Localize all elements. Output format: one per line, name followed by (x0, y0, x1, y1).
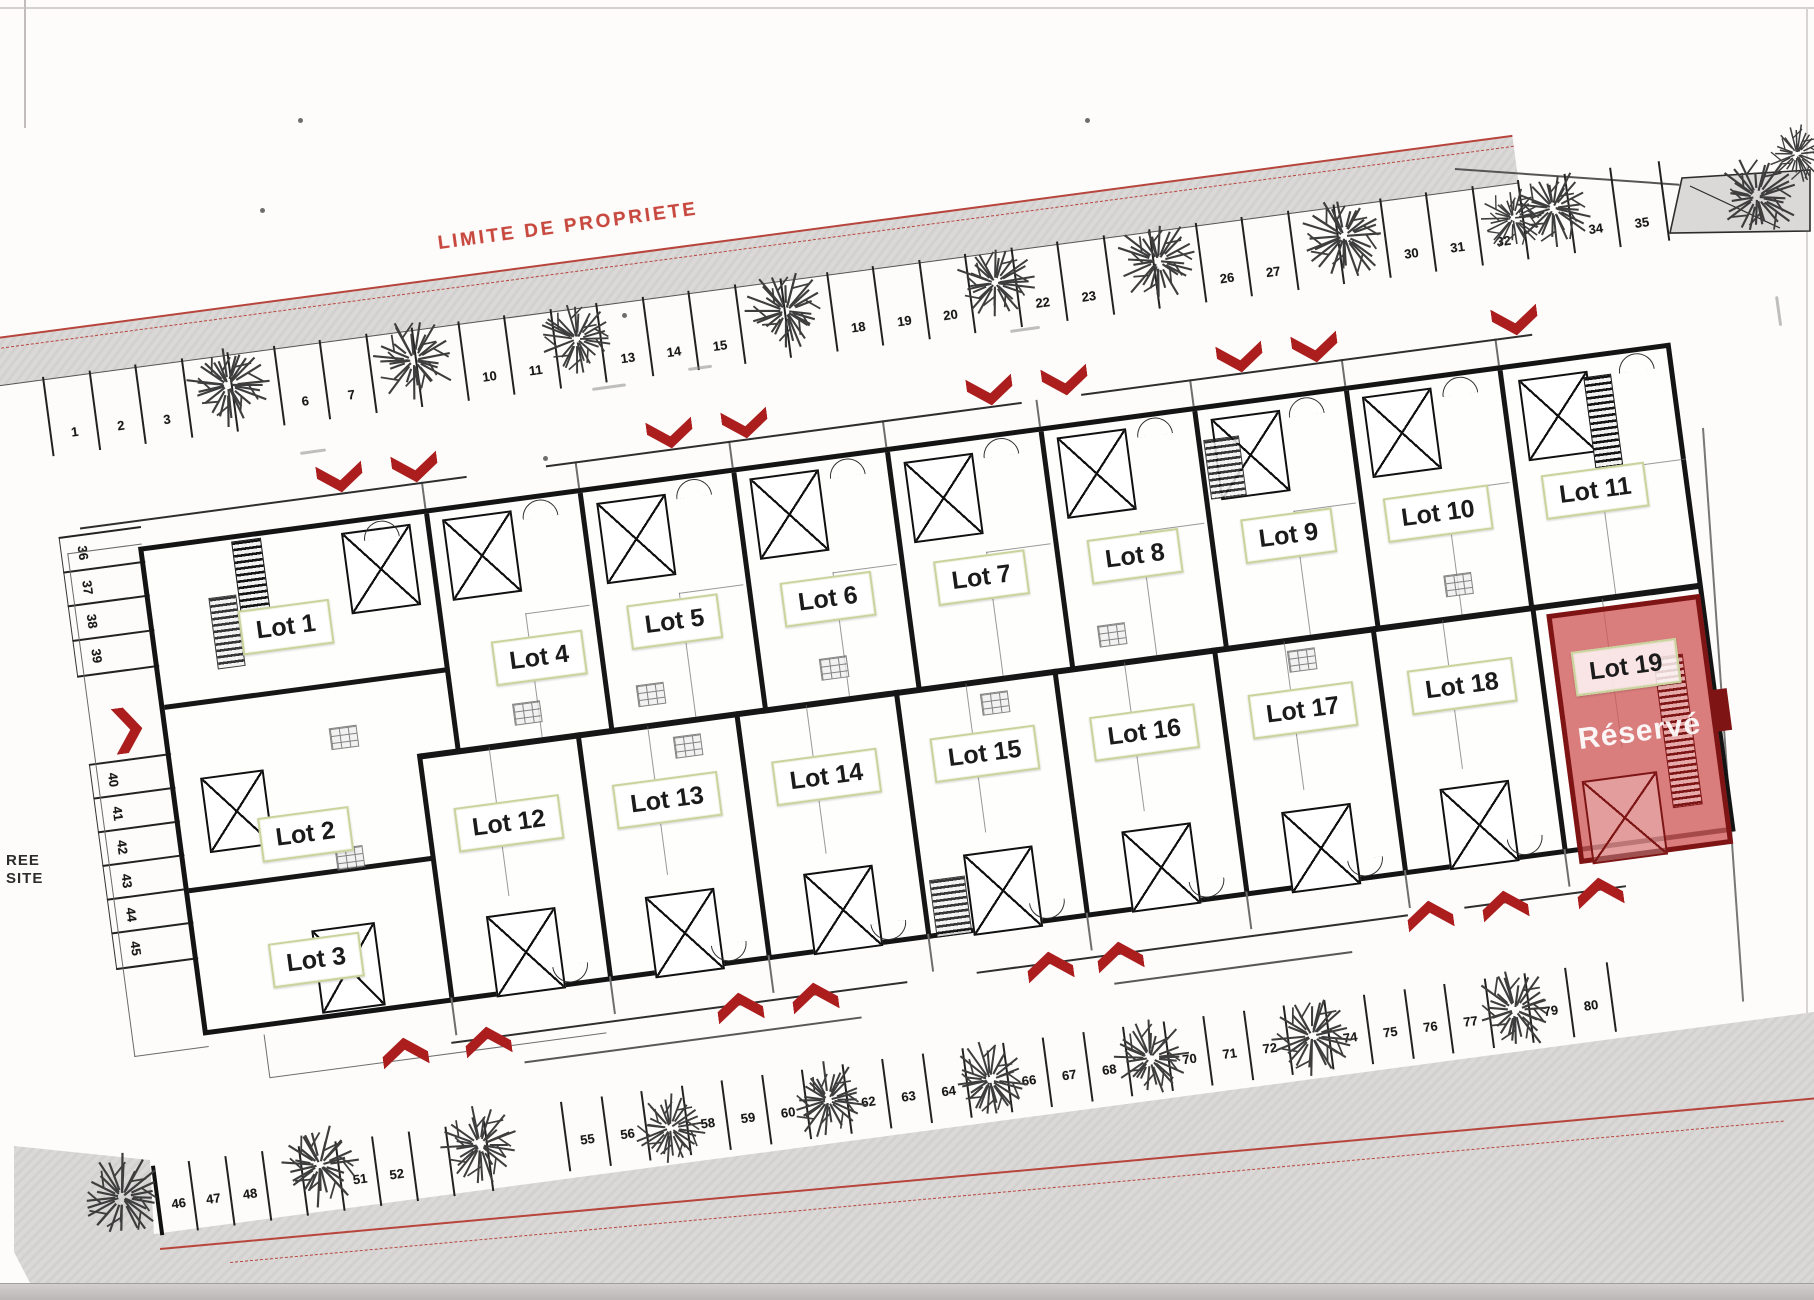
road-edge-top (80, 476, 467, 530)
parking-number-55: 55 (579, 1132, 595, 1147)
fence-stub-bottom-3 (768, 955, 775, 993)
direction-arrow-up-1 (380, 1035, 429, 1070)
scan-speck-1 (622, 313, 627, 318)
building-left-wall-2 (189, 856, 434, 893)
parking-number-59: 59 (740, 1110, 756, 1125)
door-arc-top-2 (520, 497, 558, 520)
garage-x-bottom-1 (486, 907, 566, 998)
garage-x-reserved (1582, 771, 1668, 864)
parking-number-35: 35 (1634, 215, 1650, 230)
parking-number-10: 10 (482, 369, 498, 384)
lot-label-6[interactable]: Lot 6 (780, 571, 877, 628)
lot-label-14[interactable]: Lot 14 (771, 748, 882, 807)
tree-icon-12 (76, 1151, 168, 1243)
reserved-zone-notch (1711, 688, 1732, 732)
parking-number-7: 7 (347, 388, 356, 402)
parking-number-27: 27 (1265, 264, 1281, 279)
garden-boundary-left (67, 543, 209, 1056)
tree-icon-17 (948, 1038, 1032, 1122)
parking-number-76: 76 (1422, 1019, 1438, 1034)
parking-number-63: 63 (901, 1089, 917, 1104)
fixture-9 (1443, 572, 1474, 598)
page-top-border (0, 7, 1814, 9)
tiny-text-smudge-3 (300, 448, 326, 455)
garage-x-top-2 (442, 510, 522, 601)
fence-stub-top-7 (1341, 359, 1346, 386)
tree-icon-6 (1114, 217, 1202, 305)
tree-icon-2 (370, 316, 458, 404)
fixture-cluster-2 (929, 876, 972, 938)
fence-stub-top-5 (1035, 400, 1040, 427)
parking-number-15: 15 (712, 338, 728, 353)
garage-x-top-8 (1362, 388, 1442, 479)
door-arc-top-4 (828, 456, 866, 479)
lot-label-9[interactable]: Lot 9 (1240, 507, 1337, 564)
garage-x-bottom-4 (963, 845, 1043, 936)
fence-stub-top-4 (882, 420, 887, 447)
property-limit-label-top: LIMITE DE PROPRIETE (437, 199, 699, 253)
unit-wall-bottom-2 (575, 732, 613, 981)
scan-speck-3 (298, 118, 303, 123)
fence-stub-top-3 (728, 441, 733, 468)
site-plan: LIMITE DE PROPRIETE LIMITE DE PROPRIETE … (0, 0, 1814, 1300)
tree-icon-9 (1479, 184, 1547, 252)
parking-number-23: 23 (1081, 289, 1097, 304)
tree-icon-7 (1299, 191, 1389, 281)
partition-h (679, 584, 744, 594)
tree-icon-20 (1471, 966, 1559, 1054)
tree-icon-4 (742, 267, 830, 355)
garage-x-bottom-6 (1281, 803, 1361, 894)
parking-number-67: 67 (1061, 1068, 1077, 1083)
fixture-6 (1097, 622, 1128, 648)
lot-label-8[interactable]: Lot 8 (1087, 528, 1184, 585)
site-entrance-label: REE SITE (6, 852, 43, 888)
parking-number-47: 47 (205, 1191, 221, 1206)
parking-stall-35: 35 (1609, 161, 1670, 247)
garage-x-bottom-5 (1121, 822, 1201, 913)
fence-stub-bottom-7 (1404, 870, 1411, 908)
fence-stub-bottom-6 (1245, 891, 1252, 929)
partition-h (525, 605, 590, 615)
parking-number-22: 22 (1035, 295, 1051, 310)
tiny-text-smudge-4 (1775, 296, 1782, 326)
door-arc-top-5 (981, 436, 1019, 459)
unit-wall-bottom-5 (1052, 669, 1090, 918)
lot-label-5[interactable]: Lot 5 (626, 593, 723, 650)
fixture-7 (1287, 647, 1318, 673)
tiny-text-smudge-1 (592, 383, 626, 391)
road-edge-bottom-2 (524, 1016, 861, 1063)
fence-stub-bottom-2 (609, 976, 616, 1014)
scan-speck-2 (543, 456, 548, 461)
parking-number-31: 31 (1449, 240, 1465, 255)
lot-label-16[interactable]: Lot 16 (1089, 703, 1200, 762)
reserved-lot-overlay: Lot 19Réservé (1546, 594, 1733, 864)
parking-number-48: 48 (242, 1186, 258, 1201)
fixture-cluster-1 (1203, 435, 1247, 499)
garage-x-top-5 (903, 453, 983, 544)
unit-wall-bottom-4 (894, 690, 932, 939)
parking-number-80: 80 (1583, 998, 1599, 1013)
direction-arrow-down-9 (1490, 304, 1539, 339)
lot-label-7[interactable]: Lot 7 (933, 549, 1030, 606)
tree-icon-11 (1765, 122, 1814, 186)
fence-stub-top-6 (1189, 379, 1194, 406)
building-outline: Lot 19RéservéLot 1Lot 2Lot 3Lot 4Lot 5Lo… (138, 343, 1736, 1036)
lot-label-4[interactable]: Lot 4 (491, 630, 588, 687)
parking-number-1: 1 (70, 425, 79, 439)
parking-number-2: 2 (116, 419, 125, 433)
fence-stub-top-1 (421, 482, 426, 509)
page-left-border (24, 0, 26, 128)
fixture-2 (512, 700, 543, 726)
tree-icon-5 (953, 241, 1037, 325)
parking-number-19: 19 (896, 314, 912, 329)
parking-number-6: 6 (301, 394, 310, 408)
fence-stub-bottom-1 (450, 997, 457, 1035)
parking-number-14: 14 (666, 344, 682, 359)
parking-stall-80: 80 (1564, 962, 1617, 1037)
door-arc-top-8 (1440, 375, 1478, 398)
fixture-8 (673, 733, 704, 759)
fence-stub-top-2 (575, 461, 580, 488)
fixture-5 (980, 690, 1011, 716)
lot-label-12[interactable]: Lot 12 (453, 794, 564, 853)
fence-stub-bottom-4 (927, 934, 934, 972)
door-arc-top-6 (1135, 415, 1173, 438)
fixture-4 (819, 655, 850, 681)
parking-number-30: 30 (1403, 246, 1419, 261)
lot-label-18[interactable]: Lot 18 (1407, 657, 1518, 716)
garage-x-top-3 (596, 494, 676, 585)
tree-icon-14 (438, 1103, 522, 1187)
page-bottom-strip (0, 1283, 1814, 1300)
tree-icon-13 (275, 1120, 365, 1210)
fence-stub-top-8 (1494, 339, 1499, 366)
parking-number-3: 3 (163, 412, 172, 426)
scan-speck-5 (260, 208, 265, 213)
garage-x-bottom-3 (803, 865, 883, 956)
scan-speck-4 (1085, 118, 1090, 123)
parking-number-71: 71 (1222, 1046, 1238, 1061)
parking-number-52: 52 (389, 1167, 405, 1182)
lot-label-11[interactable]: Lot 11 (1541, 462, 1650, 520)
tree-icon-3 (537, 299, 617, 379)
parking-number-26: 26 (1219, 270, 1235, 285)
road-edge-bottom-2 (1114, 951, 1352, 984)
building-left-wall-1 (164, 667, 447, 710)
unit-wall-bottom-1 (417, 753, 455, 1002)
garage-x-bottom-7 (1439, 780, 1519, 871)
site-entrance-line1: REE (6, 852, 43, 870)
parking-number-13: 13 (620, 350, 636, 365)
garage-x-bottom-2 (645, 888, 725, 979)
lot-label-15[interactable]: Lot 15 (929, 725, 1040, 784)
unit-wall-bottom-7 (1370, 626, 1408, 875)
lot-label-13[interactable]: Lot 13 (612, 771, 723, 830)
tree-icon-19 (1269, 993, 1355, 1079)
unit-wall-bottom-6 (1212, 647, 1250, 896)
tree-icon-15 (630, 1088, 710, 1168)
garden-boundary-bottom (269, 1032, 606, 1078)
parking-number-75: 75 (1382, 1025, 1398, 1040)
door-arc-top-7 (1287, 395, 1325, 418)
direction-arrow-up-7 (1405, 898, 1454, 933)
garden-boundary-step (264, 1035, 271, 1078)
fence-stub-bottom-8 (1563, 849, 1570, 887)
fence-stub-bottom-5 (1086, 913, 1093, 951)
parking-number-46: 46 (171, 1196, 187, 1211)
tree-icon-16 (786, 1058, 870, 1142)
garage-x-top-6 (1057, 428, 1137, 519)
site-entrance-line2: SITE (6, 870, 43, 888)
lot-label-17[interactable]: Lot 17 (1248, 681, 1359, 740)
unit-wall-bottom-3 (734, 711, 772, 960)
fixture-3 (636, 682, 667, 708)
lot-label-10[interactable]: Lot 10 (1383, 484, 1494, 543)
door-arc-top-3 (674, 477, 712, 500)
fixture-1 (329, 725, 360, 751)
tree-icon-18 (1108, 1016, 1192, 1100)
tree-icon-1 (183, 340, 273, 430)
door-arc-top-9 (1617, 351, 1655, 374)
garage-x-top-4 (749, 469, 829, 560)
parking-number-18: 18 (850, 320, 866, 335)
